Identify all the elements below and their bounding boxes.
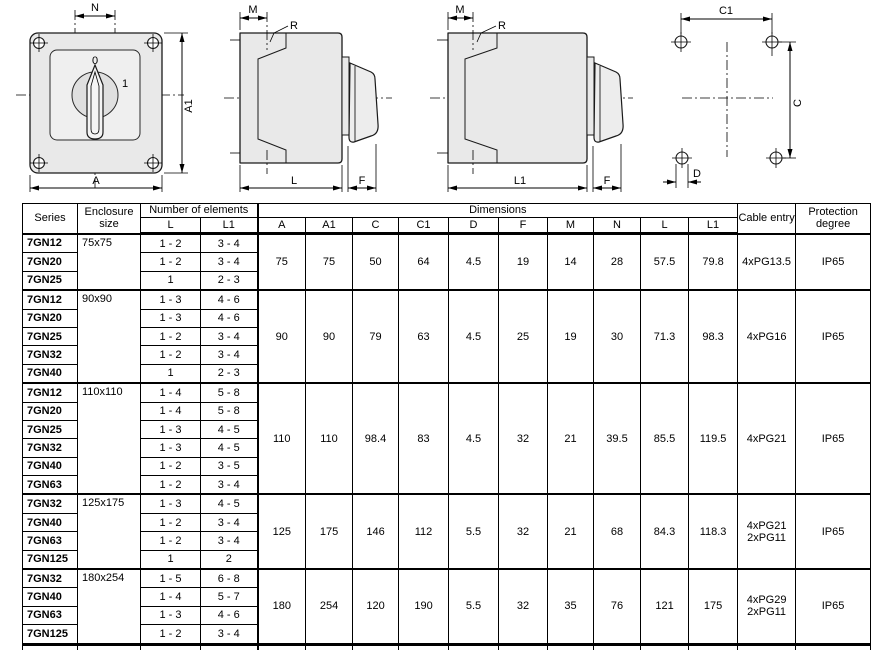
dim-label-f: F: [604, 175, 611, 187]
table-cutoff-cell: [201, 644, 258, 650]
elements-l-cell: 1 - 4: [141, 383, 201, 402]
table-cutoff-cell: [689, 644, 738, 650]
elements-l1-cell: 5 - 8: [201, 402, 258, 420]
dimension-value-cell: 121: [641, 569, 689, 644]
table-cutoff-cell: [141, 644, 201, 650]
dimension-value-cell: 4.5: [449, 290, 499, 383]
elements-l-cell: 1 - 4: [141, 588, 201, 606]
table-cutoff-cell: [738, 644, 796, 650]
position-1-label: 1: [122, 78, 128, 90]
elements-l-cell: 1 - 2: [141, 532, 201, 550]
header-dim-f: F: [499, 218, 548, 234]
elements-l1-cell: 3 - 4: [201, 625, 258, 644]
dim-label-c1: C1: [719, 5, 733, 17]
series-cell: 7GN40: [23, 457, 78, 475]
table-row: 7GN1290x901 - 34 - 6909079634.525193071.…: [23, 290, 871, 309]
cable-entry-cell: 4xPG21 2xPG11: [738, 494, 796, 569]
series-cell: 7GN25: [23, 327, 78, 345]
table-row: 7GN12110x1101 - 45 - 811011098.4834.5322…: [23, 383, 871, 402]
dimension-value-cell: 110: [306, 383, 353, 494]
series-cell: 7GN32: [23, 346, 78, 364]
series-cell: 7GN20: [23, 309, 78, 327]
side-view-l1-drawing: M R L1 F: [425, 2, 640, 198]
dimension-value-cell: 118.3: [689, 494, 738, 569]
table-cutoff-cell: [23, 644, 78, 650]
dimension-value-cell: 79: [353, 290, 399, 383]
elements-l-cell: 1 - 2: [141, 457, 201, 475]
side-view-l-drawing: M R L F: [222, 2, 400, 198]
series-cell: 7GN63: [23, 476, 78, 495]
elements-l-cell: 1 - 3: [141, 494, 201, 513]
dim-label-c: C: [792, 99, 804, 107]
series-cell: 7GN12: [23, 290, 78, 309]
elements-l1-cell: 2: [201, 550, 258, 569]
header-dim-n: N: [594, 218, 641, 234]
dimension-value-cell: 32: [499, 569, 548, 644]
header-elements-l1: L1: [201, 218, 258, 234]
enclosure-size-cell: 75x75: [78, 234, 141, 291]
table-cutoff-cell: [796, 644, 871, 650]
dimension-value-cell: 71.3: [641, 290, 689, 383]
elements-l1-cell: 2 - 3: [201, 364, 258, 383]
dimension-value-cell: 83: [399, 383, 449, 494]
table-row: 7GN32125x1751 - 34 - 51251751461125.5322…: [23, 494, 871, 513]
dim-label-n: N: [91, 2, 99, 14]
dim-label-m: M: [455, 4, 464, 16]
dimension-value-cell: 39.5: [594, 383, 641, 494]
table-cutoff-cell: [306, 644, 353, 650]
table-header: Series Enclosure size Number of elements…: [23, 204, 871, 234]
elements-l-cell: 1 - 4: [141, 402, 201, 420]
dimension-value-cell: 68: [594, 494, 641, 569]
dimension-value-cell: 119.5: [689, 383, 738, 494]
series-cell: 7GN32: [23, 569, 78, 588]
front-view-drawing: 0 1 N A1 A: [10, 2, 210, 198]
protection-degree-cell: IP65: [796, 569, 871, 644]
shaft: [587, 57, 594, 135]
elements-l1-cell: 3 - 4: [201, 532, 258, 550]
cable-entry-cell: 4xPG21: [738, 383, 796, 494]
dimension-value-cell: 4.5: [449, 234, 499, 291]
dimension-value-cell: 21: [548, 383, 594, 494]
elements-l1-cell: 4 - 5: [201, 494, 258, 513]
elements-l-cell: 1: [141, 550, 201, 569]
dimension-value-cell: 19: [548, 290, 594, 383]
elements-l-cell: 1: [141, 271, 201, 290]
dimension-value-cell: 14: [548, 234, 594, 291]
elements-l-cell: 1 - 2: [141, 476, 201, 495]
header-dimensions: Dimensions: [258, 204, 738, 218]
cable-entry-cell: 4xPG13.5: [738, 234, 796, 291]
dimension-value-cell: 98.3: [689, 290, 738, 383]
dimensions-table: Series Enclosure size Number of elements…: [22, 203, 871, 650]
dimension-value-cell: 112: [399, 494, 449, 569]
table-cutoff-cell: [449, 644, 499, 650]
header-dim-a1: A1: [306, 218, 353, 234]
elements-l-cell: 1 - 2: [141, 234, 201, 253]
dimension-value-cell: 125: [258, 494, 306, 569]
dim-label-f: F: [359, 175, 366, 187]
cable-entry-cell: 4xPG16: [738, 290, 796, 383]
elements-l-cell: 1 - 3: [141, 420, 201, 438]
mounting-holes: [671, 32, 786, 168]
elements-l1-cell: 5 - 8: [201, 383, 258, 402]
elements-l-cell: 1 - 3: [141, 606, 201, 624]
table-cutoff-row: [23, 644, 871, 650]
enclosure-size-cell: 90x90: [78, 290, 141, 383]
dimension-value-cell: 79.8: [689, 234, 738, 291]
dim-label-l: L: [291, 175, 297, 187]
elements-l-cell: 1 - 2: [141, 625, 201, 644]
protection-degree-cell: IP65: [796, 234, 871, 291]
series-cell: 7GN32: [23, 494, 78, 513]
elements-l1-cell: 3 - 4: [201, 253, 258, 271]
elements-l1-cell: 4 - 6: [201, 290, 258, 309]
dimension-value-cell: 28: [594, 234, 641, 291]
dimension-value-cell: 21: [548, 494, 594, 569]
dimension-value-cell: 175: [306, 494, 353, 569]
table-cutoff-cell: [399, 644, 449, 650]
elements-l1-cell: 3 - 5: [201, 457, 258, 475]
dimension-value-cell: 35: [548, 569, 594, 644]
dimension-value-cell: 57.5: [641, 234, 689, 291]
protection-degree-cell: IP65: [796, 383, 871, 494]
dimension-value-cell: 4.5: [449, 383, 499, 494]
dimension-value-cell: 75: [258, 234, 306, 291]
header-dim-d: D: [449, 218, 499, 234]
header-dim-m: M: [548, 218, 594, 234]
elements-l1-cell: 3 - 4: [201, 346, 258, 364]
elements-l-cell: 1 - 2: [141, 346, 201, 364]
elements-l1-cell: 4 - 6: [201, 606, 258, 624]
elements-l1-cell: 3 - 4: [201, 327, 258, 345]
elements-l-cell: 1 - 5: [141, 569, 201, 588]
dimension-value-cell: 5.5: [449, 494, 499, 569]
series-cell: 7GN40: [23, 513, 78, 531]
switch-body: [448, 33, 587, 163]
header-dim-a: A: [258, 218, 306, 234]
dim-label-m: M: [248, 4, 257, 16]
knob-side: [594, 63, 623, 142]
dimension-value-cell: 110: [258, 383, 306, 494]
dim-label-r: R: [498, 20, 506, 32]
dimension-value-cell: 63: [399, 290, 449, 383]
datasheet-page: 0 1 N A1 A M: [0, 0, 874, 650]
dimension-value-cell: 64: [399, 234, 449, 291]
dimension-value-cell: 98.4: [353, 383, 399, 494]
series-cell: 7GN20: [23, 402, 78, 420]
series-cell: 7GN63: [23, 532, 78, 550]
elements-l1-cell: 4 - 6: [201, 309, 258, 327]
series-cell: 7GN32: [23, 439, 78, 457]
elements-l1-cell: 4 - 5: [201, 420, 258, 438]
dimension-value-cell: 76: [594, 569, 641, 644]
elements-l-cell: 1 - 3: [141, 290, 201, 309]
dimension-value-cell: 84.3: [641, 494, 689, 569]
table-cutoff-cell: [78, 644, 141, 650]
shaft: [342, 57, 349, 135]
dimension-value-cell: 19: [499, 234, 548, 291]
series-cell: 7GN25: [23, 271, 78, 290]
dimension-value-cell: 120: [353, 569, 399, 644]
dim-label-a: A: [92, 175, 100, 187]
dimension-value-cell: 5.5: [449, 569, 499, 644]
dim-label-l1: L1: [514, 175, 526, 187]
header-protection-degree: Protection degree: [796, 204, 871, 234]
header-number-of-elements: Number of elements: [141, 204, 258, 218]
dimension-value-cell: 175: [689, 569, 738, 644]
protection-degree-cell: IP65: [796, 494, 871, 569]
dimension-value-cell: 180: [258, 569, 306, 644]
series-cell: 7GN63: [23, 606, 78, 624]
dimension-value-cell: 50: [353, 234, 399, 291]
series-cell: 7GN12: [23, 383, 78, 402]
dimension-value-cell: 32: [499, 383, 548, 494]
series-cell: 7GN125: [23, 625, 78, 644]
header-dim-c: C: [353, 218, 399, 234]
dimension-value-cell: 190: [399, 569, 449, 644]
elements-l1-cell: 5 - 7: [201, 588, 258, 606]
header-enclosure-size: Enclosure size: [78, 204, 141, 234]
table-row: 7GN1275x751 - 23 - 4757550644.519142857.…: [23, 234, 871, 253]
mounting-pattern-drawing: C1 C D: [655, 2, 874, 198]
elements-l-cell: 1 - 2: [141, 513, 201, 531]
elements-l-cell: 1 - 2: [141, 327, 201, 345]
elements-l1-cell: 3 - 4: [201, 513, 258, 531]
elements-l-cell: 1 - 3: [141, 309, 201, 327]
elements-l-cell: 1: [141, 364, 201, 383]
dimension-value-cell: 90: [306, 290, 353, 383]
elements-l-cell: 1 - 2: [141, 253, 201, 271]
table-cutoff-cell: [499, 644, 548, 650]
header-cable-entry: Cable entry: [738, 204, 796, 234]
series-cell: 7GN20: [23, 253, 78, 271]
dimension-value-cell: 30: [594, 290, 641, 383]
series-cell: 7GN125: [23, 550, 78, 569]
enclosure-size-cell: 125x175: [78, 494, 141, 569]
table-row: 7GN32180x2541 - 56 - 81802541201905.5323…: [23, 569, 871, 588]
elements-l-cell: 1 - 3: [141, 439, 201, 457]
dimension-value-cell: 32: [499, 494, 548, 569]
dim-label-r: R: [290, 20, 298, 32]
dimension-value-cell: 254: [306, 569, 353, 644]
elements-l1-cell: 4 - 5: [201, 439, 258, 457]
enclosure-size-cell: 110x110: [78, 383, 141, 494]
position-0-label: 0: [92, 55, 98, 67]
dimension-value-cell: 25: [499, 290, 548, 383]
dimension-value-cell: 75: [306, 234, 353, 291]
series-cell: 7GN40: [23, 588, 78, 606]
dim-label-a1: A1: [183, 99, 195, 112]
table-cutoff-cell: [594, 644, 641, 650]
elements-l1-cell: 3 - 4: [201, 234, 258, 253]
table-cutoff-cell: [258, 644, 306, 650]
dim-label-d: D: [693, 168, 701, 180]
header-series: Series: [23, 204, 78, 234]
enclosure-size-cell: 180x254: [78, 569, 141, 644]
table-body: 7GN1275x751 - 23 - 4757550644.519142857.…: [23, 234, 871, 650]
knob-side: [349, 63, 378, 142]
elements-l1-cell: 3 - 4: [201, 476, 258, 495]
cable-entry-cell: 4xPG29 2xPG11: [738, 569, 796, 644]
series-cell: 7GN40: [23, 364, 78, 383]
table-cutoff-cell: [548, 644, 594, 650]
elements-l1-cell: 6 - 8: [201, 569, 258, 588]
series-cell: 7GN25: [23, 420, 78, 438]
dimension-value-cell: 85.5: [641, 383, 689, 494]
header-dim-l1: L1: [689, 218, 738, 234]
header-dim-l: L: [641, 218, 689, 234]
table-cutoff-cell: [353, 644, 399, 650]
protection-degree-cell: IP65: [796, 290, 871, 383]
table-cutoff-cell: [641, 644, 689, 650]
switch-body: [240, 33, 342, 163]
series-cell: 7GN12: [23, 234, 78, 253]
dimension-value-cell: 90: [258, 290, 306, 383]
elements-l1-cell: 2 - 3: [201, 271, 258, 290]
dimension-value-cell: 146: [353, 494, 399, 569]
header-elements-l: L: [141, 218, 201, 234]
header-dim-c1: C1: [399, 218, 449, 234]
